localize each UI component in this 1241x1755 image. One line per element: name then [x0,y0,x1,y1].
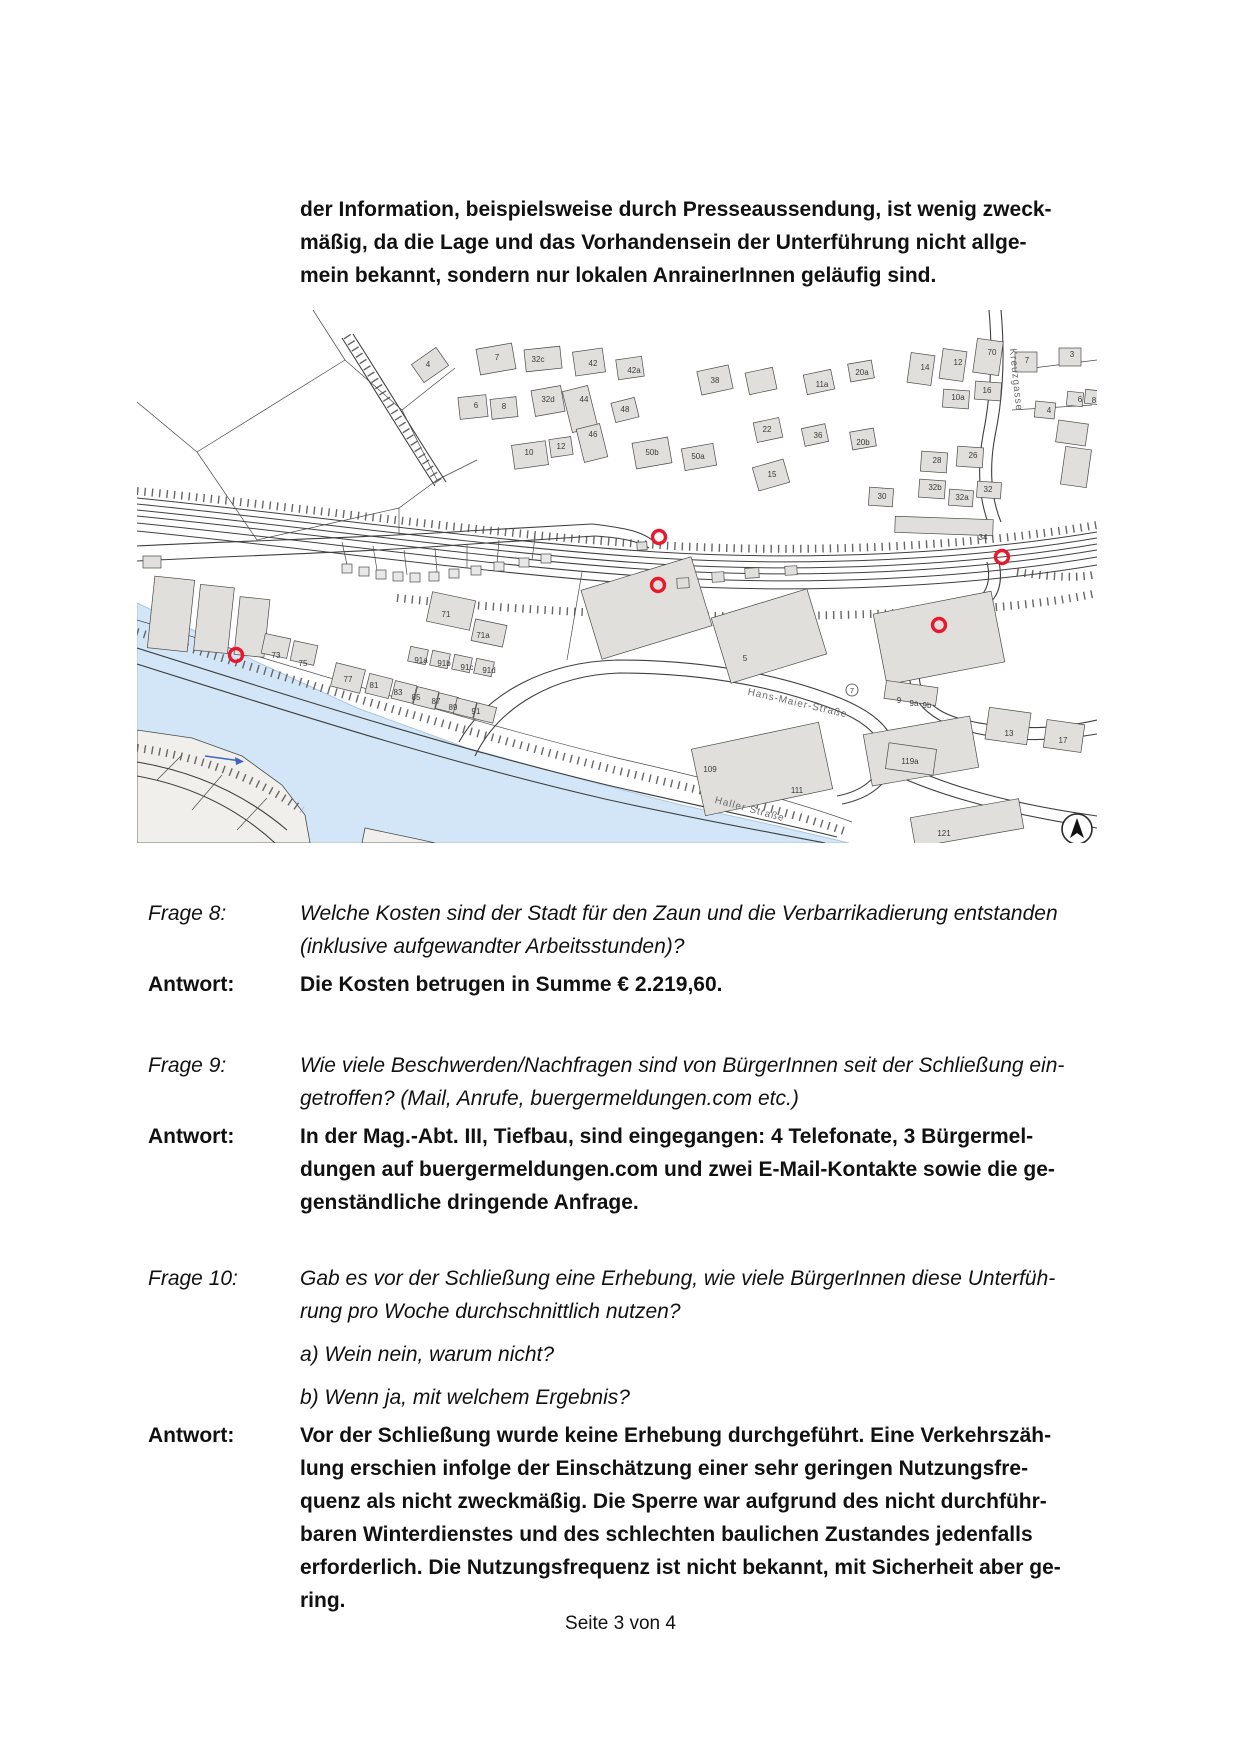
building [910,799,1024,843]
question-8-text: Welche Kosten sind der Stadt für den Zau… [300,897,1115,963]
answer-line: Die Kosten betrugen in Summe € 2.219,60. [300,968,1115,1001]
house-number: 109 [703,765,717,774]
house-number: 11a [816,380,829,389]
house-number: 12 [954,358,963,367]
building [677,578,690,589]
house-number: 9a [910,699,919,708]
house-number: 32 [984,485,993,494]
location-marker [653,531,666,544]
answer-line: erforderlich. Die Nutzungsfrequenz ist n… [300,1551,1115,1584]
map-figure: 4732c4242a6832d444846101250b50a153811a20… [137,310,1097,843]
answer-line: genständliche dringende Anfrage. [300,1186,1115,1219]
house-number: 42a [627,366,641,375]
house-number: 5 [743,654,748,663]
house-number: 8 [502,402,507,411]
building [581,557,712,659]
house-number: 7 [1025,356,1030,365]
answer-line: quenz als nicht zweckmäßig. Die Sperre w… [300,1485,1115,1518]
house-number: 7 [495,353,500,362]
building [985,707,1031,745]
house-number: 48 [621,405,630,414]
intro-paragraph: der Information, beispielsweise durch Pr… [300,193,1115,292]
answer-line: baren Winterdienstes und des schlechten … [300,1518,1115,1551]
question-9-text: Wie viele Beschwerden/Nachfragen sind vo… [300,1049,1115,1115]
house-number: 16 [983,386,992,395]
house-number: 32d [541,395,554,404]
answer-9-text: In der Mag.-Abt. III, Tiefbau, sind eing… [300,1120,1115,1219]
document-page: der Information, beispielsweise durch Pr… [0,0,1241,1755]
house-number: 91b [437,659,451,668]
house-number: 20a [855,368,869,377]
house-number: 89 [449,703,458,712]
question-line: Wie viele Beschwerden/Nachfragen sind vo… [300,1049,1115,1082]
house-number: 42 [589,359,598,368]
building [426,592,475,630]
house-number: 4 [426,360,431,369]
house-number: 6 [1078,395,1083,404]
small-building [494,562,504,571]
parcel-line [137,402,197,452]
house-number: 34 [979,533,988,542]
house-number: 91c [461,663,474,672]
house-number: 81 [370,681,379,690]
house-number: 38 [711,376,720,385]
house-number: 91d [482,666,495,675]
answer-line: dungen auf buergermeldungen.com und zwei… [300,1153,1115,1186]
small-building [410,573,420,582]
house-number: 83 [394,688,403,697]
house-number: 17 [1059,736,1068,745]
small-building [541,554,551,563]
question-line: (inklusive aufgewandter Arbeitsstunden)? [300,930,1115,963]
answer-9-label: Antwort: [148,1120,288,1153]
intro-line: mäßig, da die Lage und das Vorhandensein… [300,226,1115,259]
building [785,566,797,576]
house-number: 87 [432,697,441,706]
building [745,568,760,579]
house-number: 32b [928,483,942,492]
intro-line: der Information, beispielsweise durch Pr… [300,193,1115,226]
page-number: Seite 3 von 4 [0,1612,1241,1636]
street-label: Hans-Maier-Straße [747,687,849,721]
question-10-label: Frage 10: [148,1262,288,1295]
small-building [342,564,352,573]
question-8-label: Frage 8: [148,897,288,930]
house-number: 77 [344,675,353,684]
parcel-line [313,310,345,360]
house-number: 9b [923,701,932,710]
building [1060,446,1091,487]
house-number: 50a [691,452,705,461]
house-number: 91 [472,707,481,716]
house-number: 91a [414,656,428,665]
small-building [519,558,529,567]
house-number: 50b [645,448,659,457]
house-number: 44 [580,395,589,404]
house-number: 30 [878,492,887,501]
house-number: 12 [557,442,566,451]
house-number: 8 [1092,396,1097,405]
house-number: 6 [474,401,479,410]
house-number: 70 [988,348,997,357]
small-building [471,566,481,575]
house-number: 15 [768,470,777,479]
house-number: 71 [442,610,451,619]
house-number: 75 [299,659,308,668]
building [1056,420,1089,446]
question-line: Gab es vor der Schließung eine Erhebung,… [300,1262,1115,1295]
parcel-line [435,548,437,572]
building [973,338,1003,375]
house-number: 111 [791,786,804,795]
answer-8-label: Antwort: [148,968,288,1001]
answer-10-label: Antwort: [148,1419,288,1452]
house-number: 28 [933,456,942,465]
small-building [376,570,386,579]
parcel-line [567,572,582,660]
question-10-text: Gab es vor der Schließung eine Erhebung,… [300,1262,1115,1328]
answer-line: lung erschien infolge der Einschätzung e… [300,1452,1115,1485]
house-number: 32a [955,493,969,502]
parcel-line [437,460,477,480]
house-number: 36 [814,431,823,440]
house-number: 10a [951,393,965,402]
building [194,584,235,653]
building [147,576,194,652]
house-number: 14 [921,363,930,372]
house-number: 73 [272,651,281,660]
building [1034,401,1056,419]
answer-10-text: Vor der Schließung wurde keine Erhebung … [300,1419,1115,1617]
answer-line: Vor der Schließung wurde keine Erhebung … [300,1419,1115,1452]
building [711,589,827,683]
answer-8-text: Die Kosten betrugen in Summe € 2.219,60. [300,968,1115,1001]
house-number: 71a [476,631,490,640]
building [143,556,161,568]
house-number: 3 [1070,350,1075,359]
house-number: 20b [856,438,870,447]
city-map-svg: 4732c4242a6832d444846101250b50a153811a20… [137,310,1097,843]
building [637,542,647,551]
house-number: 10 [525,448,534,457]
parcel-line [404,550,407,575]
intro-line: mein bekannt, sondern nur lokalen Anrain… [300,259,1115,292]
building [745,367,777,394]
question-line: Welche Kosten sind der Stadt für den Zau… [300,897,1115,930]
question-10-sub-a: a) Wein nein, warum nicht? [300,1338,1115,1371]
small-building [449,569,459,578]
house-number: 121 [937,829,951,838]
small-building [359,567,369,576]
house-number: 26 [969,451,978,460]
house-number: 32c [532,355,545,364]
house-number: 4 [1047,406,1052,415]
answer-line: In der Mag.-Abt. III, Tiefbau, sind eing… [300,1120,1115,1153]
house-number: 119a [901,757,919,766]
house-number: 13 [1005,729,1014,738]
question-9-label: Frage 9: [148,1049,288,1082]
question-line: getroffen? (Mail, Anrufe, buergermeldung… [300,1082,1115,1115]
parcel-line [197,360,437,540]
circled-number: 7 [850,686,854,695]
question-line: rung pro Woche durchschnittlich nutzen? [300,1295,1115,1328]
question-10-sub-b: b) Wenn ja, mit welchem Ergebnis? [300,1381,1115,1414]
building [873,591,1005,685]
house-number: 22 [763,425,772,434]
house-number: 85 [412,693,421,702]
building [712,572,725,583]
small-building [393,572,403,581]
parcel-line [497,540,499,564]
house-number: 46 [589,430,598,439]
small-building [429,572,439,581]
house-number: 9 [897,696,902,705]
